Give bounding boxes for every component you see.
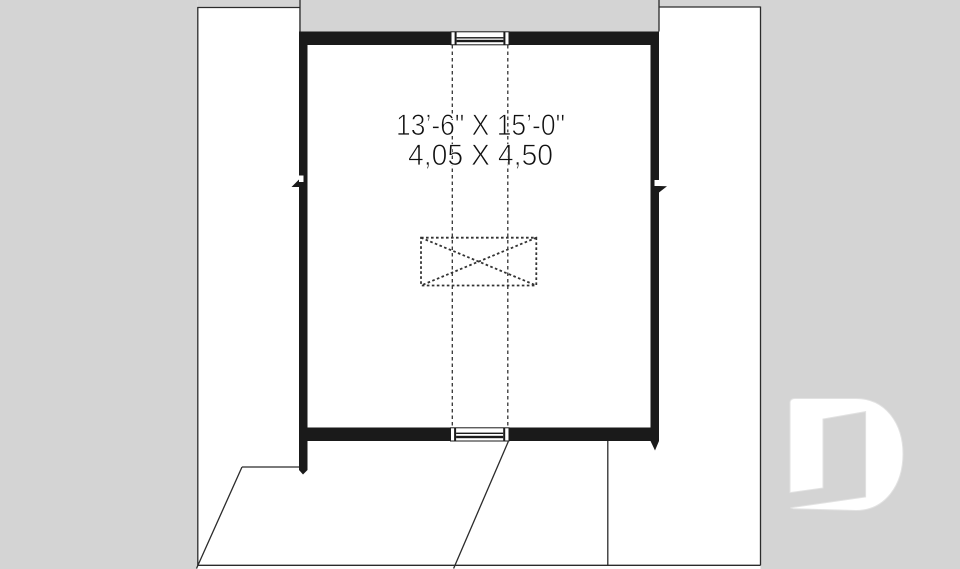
svg-text:13’-6" X 15’-0": 13’-6" X 15’-0" [396,109,565,142]
svg-text:4,05 X 4,50: 4,05 X 4,50 [408,139,553,172]
